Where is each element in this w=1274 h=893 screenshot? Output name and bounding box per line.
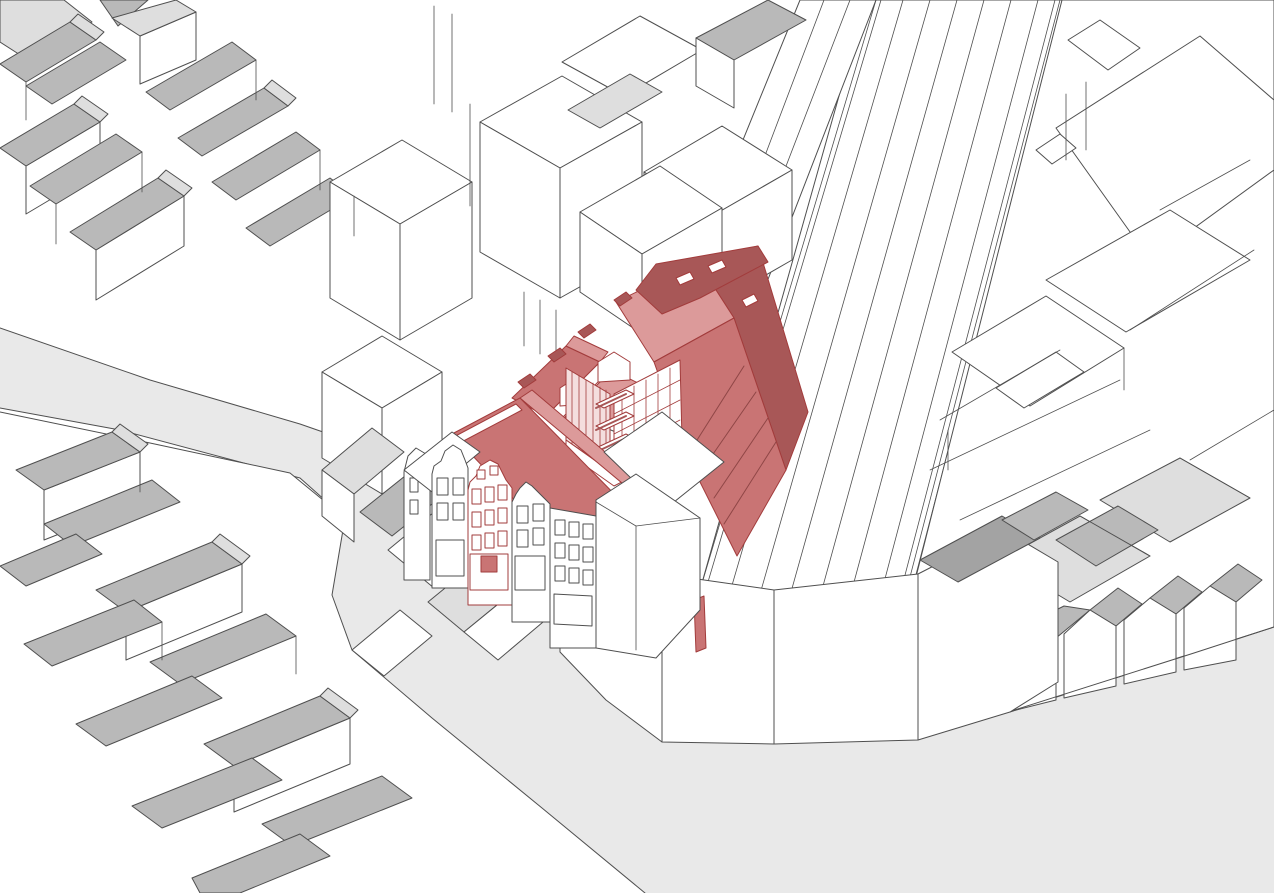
facade-window	[437, 503, 448, 520]
storefront	[436, 540, 464, 576]
highlighted-facade-window	[498, 531, 507, 546]
highlighted-facade-window	[485, 487, 494, 502]
facade-window	[569, 568, 579, 583]
scene-canvas	[0, 0, 1274, 893]
facade-window	[555, 520, 565, 535]
door	[481, 556, 497, 572]
highlighted-facade-window	[485, 510, 494, 525]
facade-window	[453, 503, 464, 520]
highlighted-facade-window	[472, 512, 481, 527]
building-block	[774, 574, 918, 744]
facade-window	[569, 545, 579, 560]
axonometric-site-diagram	[0, 0, 1274, 893]
highlighted-facade-window	[490, 466, 498, 475]
gable-facade	[512, 482, 550, 622]
storefront	[554, 594, 592, 626]
facade-window	[533, 504, 544, 521]
facade-window	[583, 524, 593, 539]
facade-window	[583, 547, 593, 562]
facade-window	[517, 530, 528, 547]
facade-window	[517, 506, 528, 523]
highlighted-facade-window	[472, 535, 481, 550]
facade-window	[453, 478, 464, 495]
facade-window	[410, 500, 418, 514]
facade-window	[569, 522, 579, 537]
facade-window	[533, 528, 544, 545]
facade-window	[437, 478, 448, 495]
storefront	[515, 556, 545, 590]
highlighted-facade-window	[485, 533, 494, 548]
facade-window	[555, 543, 565, 558]
facade-window	[555, 566, 565, 581]
facade-window	[583, 570, 593, 585]
highlighted-facade-window	[472, 489, 481, 504]
highlighted-facade-window	[498, 485, 507, 500]
highlighted-facade-window	[498, 508, 507, 523]
highlighted-facade-window	[477, 470, 485, 479]
